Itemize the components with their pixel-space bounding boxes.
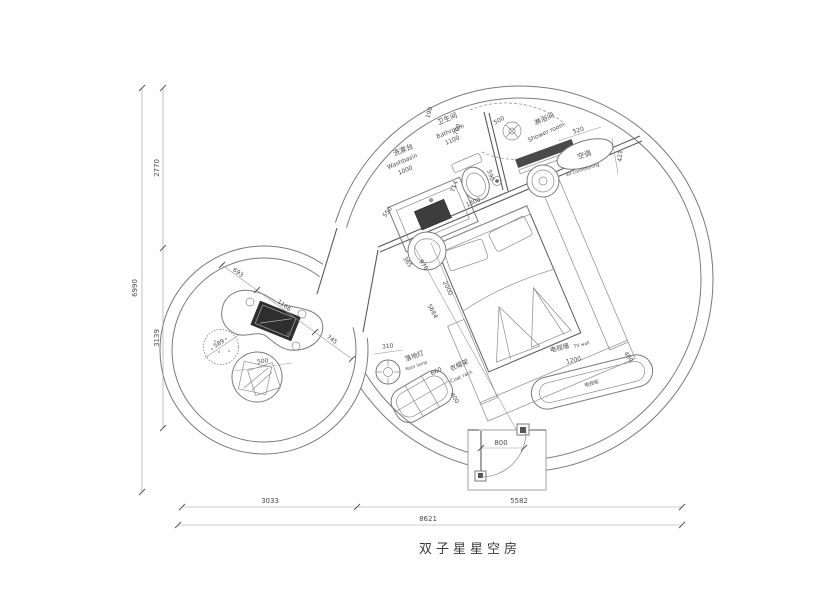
drawing-title: 双子星星空房: [419, 541, 521, 557]
dim-width-right: 5582: [510, 497, 528, 505]
floor-plan-drawing: 6990 2770 3139 3033 5582 8621 洗漱台 Washba…: [0, 0, 837, 592]
fan-coil-unit: [527, 165, 559, 197]
entrance: [468, 424, 546, 490]
dim-800-door: 800: [494, 439, 507, 447]
dim-height-bottom: 3139: [153, 329, 161, 347]
dimension-left: [139, 85, 166, 495]
dim-height-top: 2770: [153, 159, 161, 177]
dim-421: 421: [617, 150, 624, 162]
dim-total-width: 8621: [419, 515, 437, 523]
dim-total-height: 6990: [131, 279, 139, 297]
dim-width-left: 3033: [261, 497, 279, 505]
floor-plan-sheet: 6990 2770 3139 3033 5582 8621 洗漱台 Washba…: [0, 0, 837, 592]
floor-lamp: [376, 360, 400, 384]
